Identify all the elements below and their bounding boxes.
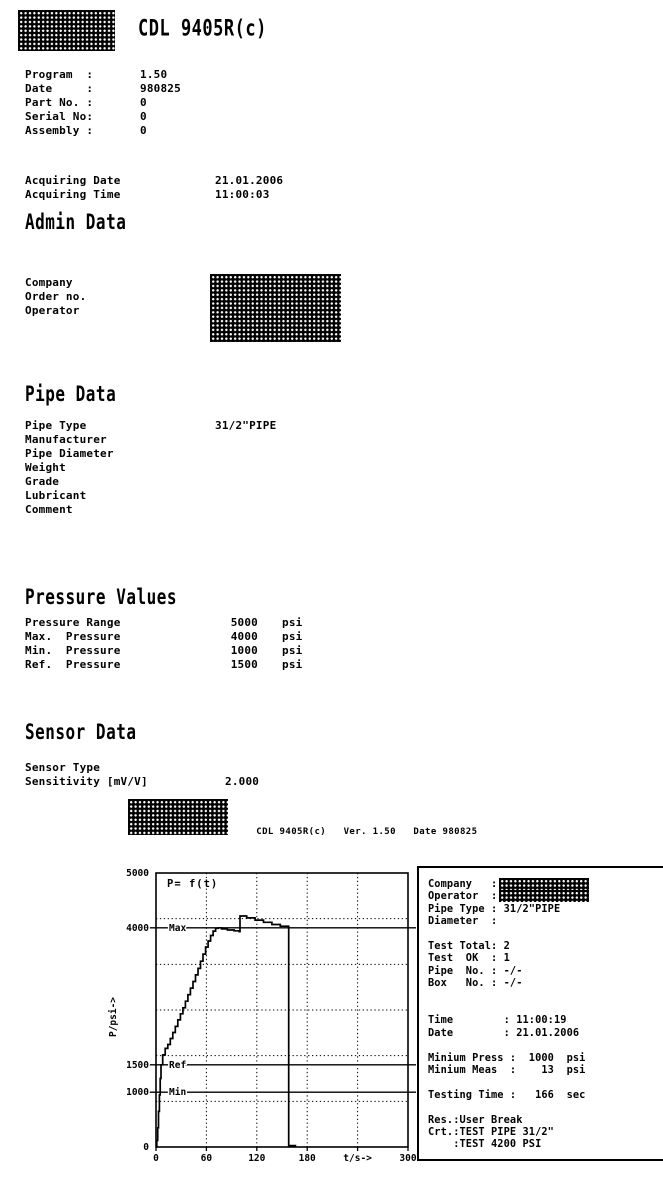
field-value: 2.000 <box>225 775 259 789</box>
field-label: Assembly : <box>25 124 140 138</box>
x-tick-label: 60 <box>201 1153 213 1164</box>
pipe-row: Lubricant <box>25 489 276 503</box>
result-panel-line <box>428 1002 663 1014</box>
caption-date: Date 980825 <box>413 827 477 837</box>
result-panel-line: Test OK : 1 <box>428 952 663 964</box>
result-panel-line: Date : 21.01.2006 <box>428 1027 663 1039</box>
field-label: Operator <box>25 304 80 318</box>
result-panel-line: Company : <box>428 878 663 890</box>
acquiring-row: Acquiring Time 11:00:03 <box>25 188 283 202</box>
field-label: Pipe Diameter <box>25 447 215 461</box>
field-value: 0 <box>140 124 147 138</box>
field-value: 980825 <box>140 82 181 96</box>
result-panel-line: Pipe Type : 31/2"PIPE <box>428 903 663 915</box>
caption-version: Ver. 1.50 <box>344 827 396 837</box>
field-label: Min. Pressure <box>25 644 155 658</box>
field-label: Date : <box>25 82 140 96</box>
admin-row: Operator <box>25 304 86 318</box>
program-info-row: Part No. : 0 <box>25 96 181 110</box>
field-value: 0 <box>140 96 147 110</box>
max-line-label: Max <box>169 923 186 934</box>
acquiring-section: Acquiring Date 21.01.2006 Acquiring Time… <box>25 174 283 202</box>
field-value: 31/2"PIPE <box>215 419 276 433</box>
line-text: Date : 21.01.2006 <box>428 1027 579 1039</box>
result-panel-line: Operator : <box>428 890 663 902</box>
line-text: Pipe Type : 31/2"PIPE <box>428 903 560 915</box>
result-panel-line: :TEST 4200 PSI <box>428 1138 663 1150</box>
field-label: Lubricant <box>25 489 215 503</box>
line-text: Minium Press : 1000 psi <box>428 1052 585 1064</box>
pressure-row: Ref. Pressure 1500 psi <box>25 658 302 672</box>
result-panel-line: Time : 11:00:19 <box>428 1014 663 1026</box>
field-label: Acquiring Time <box>25 188 215 202</box>
program-info-row: Program : 1.50 <box>25 68 181 82</box>
line-text: Box No. : -/- <box>428 977 523 989</box>
admin-row: Company <box>25 276 86 290</box>
pressure-row: Min. Pressure 1000 psi <box>25 644 302 658</box>
x-tick-label: 300 <box>399 1153 416 1164</box>
pipe-row: Pipe Diameter <box>25 447 276 461</box>
field-value: 0 <box>140 110 147 124</box>
admin-data-heading: Admin Data <box>25 210 126 234</box>
field-unit: psi <box>282 644 302 658</box>
line-text: Minium Meas : 13 psi <box>428 1064 585 1076</box>
result-panel-line <box>428 1101 663 1113</box>
line-text: :TEST 4200 PSI <box>428 1138 541 1150</box>
field-label: Max. Pressure <box>25 630 155 644</box>
result-panel-line: Minium Meas : 13 psi <box>428 1064 663 1076</box>
line-text: Pipe No. : -/- <box>428 965 523 977</box>
pressure-curve <box>156 916 295 1147</box>
pipe-row: Pipe Type 31/2"PIPE <box>25 419 276 433</box>
y-tick-label: 1000 <box>126 1087 149 1098</box>
line-text: Time : 11:00:19 <box>428 1014 567 1026</box>
field-value: 21.01.2006 <box>215 174 283 188</box>
line-text: Test Total: 2 <box>428 940 510 952</box>
field-label: Pipe Type <box>25 419 215 433</box>
x-axis-label: t/s-> <box>343 1153 372 1164</box>
field-label: Comment <box>25 503 215 517</box>
result-panel-line: Pipe No. : -/- <box>428 965 663 977</box>
program-info-row: Serial No: 0 <box>25 110 181 124</box>
admin-data-section: Company Order no. Operator <box>25 276 86 318</box>
line-text: Test OK : 1 <box>428 952 510 964</box>
field-label: Part No. : <box>25 96 140 110</box>
page-title: CDL 9405R(c) <box>138 16 267 42</box>
field-label: Acquiring Date <box>25 174 215 188</box>
field-value: 11:00:03 <box>215 188 270 202</box>
result-panel-line: Minium Press : 1000 psi <box>428 1052 663 1064</box>
y-tick-label: 5000 <box>126 868 149 879</box>
y-tick-label: 4000 <box>126 923 149 934</box>
pressure-values-heading: Pressure Values <box>25 585 177 609</box>
field-label: Sensitivity [mV/V] <box>25 775 225 789</box>
field-value: 1.50 <box>140 68 167 82</box>
field-unit: psi <box>282 658 302 672</box>
y-axis-label: P/psi-> <box>108 997 119 1037</box>
field-label: Company <box>25 276 73 290</box>
line-text: Company : <box>428 878 497 890</box>
y-tick-label: 1500 <box>126 1060 149 1071</box>
field-label: Pressure Range <box>25 616 155 630</box>
result-panel-line: Crt.:TEST PIPE 31/2" <box>428 1126 663 1138</box>
x-tick-label: 120 <box>248 1153 265 1164</box>
result-panel-line <box>428 990 663 1002</box>
pipe-data-section: Pipe Type 31/2"PIPE Manufacturer Pipe Di… <box>25 419 276 517</box>
sensor-data-heading: Sensor Data <box>25 720 136 744</box>
caption-title: CDL 9405R(c) <box>256 827 326 837</box>
result-panel-line: Test Total: 2 <box>428 940 663 952</box>
redacted-value-block <box>499 878 589 890</box>
line-text: Testing Time : 166 sec <box>428 1089 585 1101</box>
field-label: Serial No: <box>25 110 140 124</box>
result-panel: Company : Operator : Pipe Type : 31/2"PI… <box>417 866 663 1161</box>
field-label: Order no. <box>25 290 86 304</box>
chart-title: P= f(t) <box>167 878 218 890</box>
result-panel-line: Res.:User Break <box>428 1114 663 1126</box>
field-value: 5000 <box>155 616 258 630</box>
pipe-row: Weight <box>25 461 276 475</box>
min-line-label: Min <box>169 1087 186 1098</box>
field-value: 1500 <box>155 658 258 672</box>
pressure-row: Pressure Range 5000 psi <box>25 616 302 630</box>
field-value: 1000 <box>155 644 258 658</box>
line-text: Diameter : <box>428 915 497 927</box>
result-panel-line: Diameter : <box>428 915 663 927</box>
line-text: Res.:User Break <box>428 1114 523 1126</box>
result-panel-line <box>428 928 663 940</box>
report-page: CDL 9405R(c) Program : 1.50 Date : 98082… <box>0 0 663 1181</box>
sensor-data-section: Sensor Type Sensitivity [mV/V] 2.000 <box>25 761 259 789</box>
field-label: Manufacturer <box>25 433 215 447</box>
program-info-section: Program : 1.50 Date : 980825 Part No. : … <box>25 68 181 138</box>
result-panel-line <box>428 1076 663 1088</box>
field-value: 4000 <box>155 630 258 644</box>
chart-caption: CDL 9405R(c) Ver. 1.50 Date 980825 <box>233 814 477 850</box>
y-tick-label: 0 <box>143 1142 149 1153</box>
pressure-values-section: Pressure Range 5000 psi Max. Pressure 40… <box>25 616 302 672</box>
line-text: Operator : <box>428 890 497 902</box>
x-tick-label: 180 <box>299 1153 316 1164</box>
small-logo-block <box>128 799 228 835</box>
sensor-row: Sensor Type <box>25 761 259 775</box>
pipe-row: Manufacturer <box>25 433 276 447</box>
field-unit: psi <box>282 630 302 644</box>
pressure-chart: MaxRefMin50004000150010000060120180300t/… <box>105 852 420 1167</box>
field-label: Grade <box>25 475 215 489</box>
logo-block <box>18 10 115 51</box>
result-panel-line <box>428 1039 663 1051</box>
pipe-row: Grade <box>25 475 276 489</box>
field-label: Program : <box>25 68 140 82</box>
redacted-value-block <box>499 890 589 902</box>
pressure-row: Max. Pressure 4000 psi <box>25 630 302 644</box>
sensor-row: Sensitivity [mV/V] 2.000 <box>25 775 259 789</box>
field-label: Sensor Type <box>25 761 225 775</box>
result-panel-line: Box No. : -/- <box>428 977 663 989</box>
acquiring-row: Acquiring Date 21.01.2006 <box>25 174 283 188</box>
redacted-block <box>210 274 341 342</box>
pipe-row: Comment <box>25 503 276 517</box>
result-panel-line: Testing Time : 166 sec <box>428 1089 663 1101</box>
ref-line-label: Ref <box>169 1060 186 1071</box>
program-info-row: Assembly : 0 <box>25 124 181 138</box>
field-label: Ref. Pressure <box>25 658 155 672</box>
field-label: Weight <box>25 461 215 475</box>
x-tick-label: 0 <box>153 1153 159 1164</box>
line-text: Crt.:TEST PIPE 31/2" <box>428 1126 554 1138</box>
admin-row: Order no. <box>25 290 86 304</box>
pipe-data-heading: Pipe Data <box>25 382 116 406</box>
field-unit: psi <box>282 616 302 630</box>
program-info-row: Date : 980825 <box>25 82 181 96</box>
